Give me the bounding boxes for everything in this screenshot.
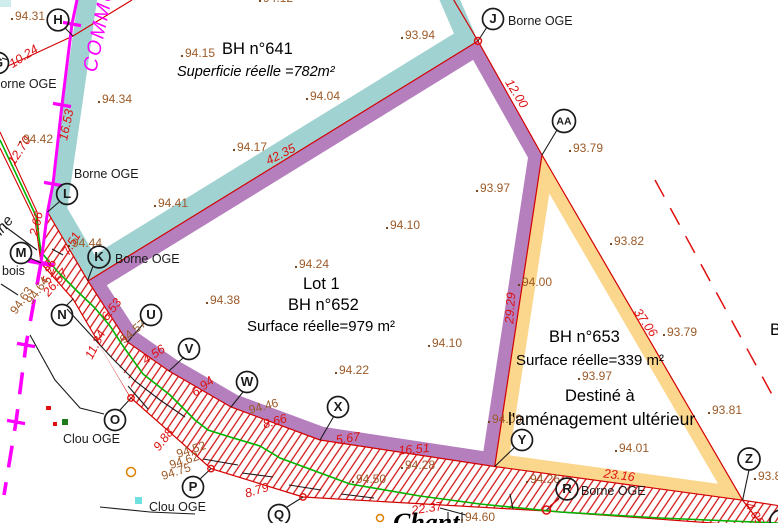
svg-text:Surface réelle=339 m²: Surface réelle=339 m² [516, 352, 664, 369]
svg-text:Surface réelle=979 m²: Surface réelle=979 m² [247, 318, 395, 335]
svg-text:16.51: 16.51 [398, 441, 430, 458]
svg-text:94.22: 94.22 [339, 363, 369, 377]
svg-text:K: K [94, 249, 104, 264]
svg-text:Destiné à: Destiné à [565, 387, 636, 405]
svg-text:93.97: 93.97 [480, 181, 510, 195]
svg-text:10.24: 10.24 [7, 42, 41, 71]
svg-text:94.04: 94.04 [310, 89, 340, 103]
svg-text:bois: bois [2, 264, 25, 278]
svg-text:93.79: 93.79 [573, 141, 603, 155]
svg-text:93.79: 93.79 [667, 325, 697, 339]
svg-text:Chant: Chant [393, 508, 460, 523]
svg-text:N: N [57, 307, 67, 322]
svg-text:P: P [189, 479, 198, 494]
svg-text:Borne OGE: Borne OGE [74, 167, 139, 181]
svg-text:Borne OGE: Borne OGE [115, 252, 180, 266]
svg-text:Superficie réelle =782m²: Superficie réelle =782m² [177, 64, 336, 80]
svg-text:L: L [63, 186, 71, 201]
svg-text:U: U [146, 307, 156, 322]
svg-text:R: R [562, 481, 572, 496]
svg-text:AA: AA [556, 115, 572, 127]
svg-text:B: B [770, 321, 778, 339]
svg-text:94.10: 94.10 [432, 336, 462, 350]
svg-text:93.82: 93.82 [614, 234, 644, 248]
svg-text:G: G [0, 55, 3, 70]
svg-text:94.26: 94.26 [530, 472, 560, 486]
svg-text:93.83: 93.83 [758, 469, 778, 483]
svg-text:94.60: 94.60 [465, 510, 495, 523]
svg-text:W: W [241, 374, 254, 389]
svg-text:94.00: 94.00 [522, 275, 552, 289]
svg-text:94.38: 94.38 [210, 293, 240, 307]
svg-text:2.66: 2.66 [27, 210, 46, 238]
svg-text:94.31: 94.31 [15, 9, 45, 23]
svg-text:94.50: 94.50 [356, 472, 386, 486]
svg-text:93.94: 93.94 [405, 28, 435, 42]
svg-text:94.12: 94.12 [263, 0, 293, 5]
svg-text:X: X [334, 399, 343, 414]
svg-text:8.79: 8.79 [243, 480, 270, 501]
svg-text:Z: Z [745, 451, 753, 466]
svg-text:94.42: 94.42 [23, 132, 53, 146]
svg-text:94.41: 94.41 [158, 196, 188, 210]
svg-text:Borne OGE: Borne OGE [581, 484, 646, 498]
svg-text:94.24: 94.24 [299, 257, 329, 271]
svg-text:Borne OGE: Borne OGE [0, 77, 57, 91]
svg-text:O: O [110, 412, 120, 427]
svg-text:M: M [16, 245, 27, 260]
svg-text:94.10: 94.10 [390, 218, 420, 232]
svg-text:Clou OGE: Clou OGE [63, 432, 120, 446]
svg-text:ine: ine [0, 212, 17, 238]
svg-text:H: H [53, 12, 63, 27]
svg-text:94.17: 94.17 [237, 140, 267, 154]
svg-text:94.28: 94.28 [405, 458, 435, 472]
svg-text:V: V [185, 341, 194, 356]
svg-text:BH n°652: BH n°652 [288, 296, 359, 314]
svg-text:94.01: 94.01 [619, 441, 649, 455]
svg-text:93.97: 93.97 [582, 369, 612, 383]
svg-text:94.34: 94.34 [102, 92, 132, 106]
svg-text:Clou OGE: Clou OGE [149, 500, 206, 514]
svg-text:Y: Y [518, 432, 527, 447]
svg-text:94.44: 94.44 [72, 236, 102, 250]
svg-text:94.15: 94.15 [185, 46, 215, 60]
svg-text:Lot 1: Lot 1 [303, 275, 340, 293]
svg-text:l'aménagement ultérieur: l'aménagement ultérieur [508, 409, 695, 429]
svg-text:J: J [489, 11, 496, 26]
svg-text:Q: Q [274, 507, 284, 522]
svg-text:Borne OGE: Borne OGE [508, 14, 573, 28]
svg-text:BH n°641: BH n°641 [222, 40, 293, 58]
svg-text:93.81: 93.81 [712, 403, 742, 417]
svg-text:BH n°653: BH n°653 [549, 328, 620, 346]
svg-text:29.29: 29.29 [502, 292, 518, 325]
